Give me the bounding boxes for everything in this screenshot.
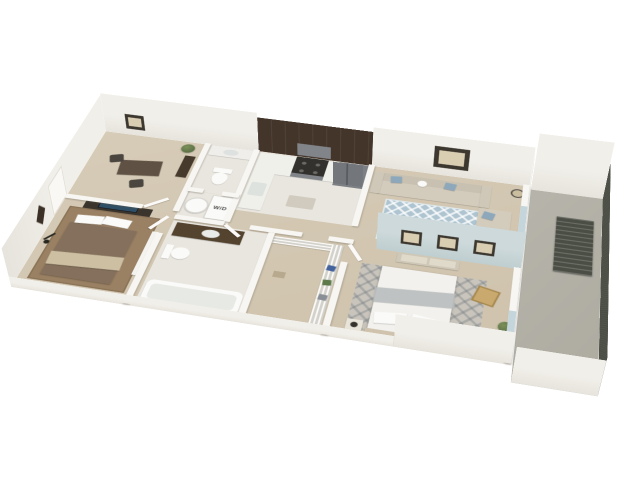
burner-icon [301, 162, 307, 165]
scene: W/D [0, 0, 640, 480]
dining-chair-1 [110, 154, 124, 163]
floorplan-3d: W/D [0, 129, 608, 397]
clothes-green [322, 280, 332, 286]
dining-wall-art [124, 114, 145, 131]
dining-desk [117, 160, 163, 176]
living-wall-art [433, 146, 470, 171]
kitchen-mat [285, 195, 316, 210]
range-stove [290, 156, 329, 180]
master-frame-3 [473, 240, 496, 257]
floorplan-image: W/D [0, 0, 640, 480]
dining-chair-2 [129, 179, 144, 188]
sofa-arm-right [479, 186, 492, 209]
sofa-pillow-1 [391, 176, 402, 183]
wall-medallion-icon [37, 205, 46, 224]
master-frame-1 [401, 230, 423, 247]
bath1-toilet-bowl [209, 172, 230, 186]
balcony-parapet-north [531, 133, 615, 199]
master-frame-2 [437, 235, 459, 252]
balcony-bench [553, 216, 594, 276]
storage-box [272, 271, 286, 279]
plant-icon [179, 144, 196, 154]
stove-front [290, 172, 324, 180]
